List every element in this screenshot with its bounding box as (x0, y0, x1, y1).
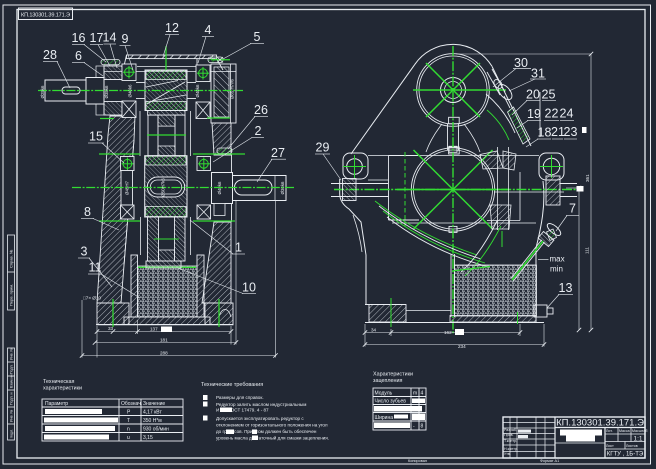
svg-text:Т.контр.: Т.контр. (504, 439, 517, 443)
svg-text:22: 22 (545, 107, 559, 121)
svg-text:Техническая: Техническая (43, 379, 75, 385)
svg-text:Подп. и: Подп. и (10, 392, 14, 405)
svg-text:4: 4 (205, 23, 212, 37)
svg-text:8: 8 (84, 205, 91, 219)
svg-text:зацепления: зацепления (373, 378, 403, 384)
svg-text:29: 29 (316, 141, 330, 155)
svg-text:24: 24 (560, 107, 574, 121)
svg-text:4: 4 (421, 391, 424, 397)
svg-text:Число зубьев: Число зубьев (375, 399, 407, 405)
svg-text:10: 10 (242, 281, 256, 295)
svg-text:Ø35k6: Ø35k6 (104, 85, 109, 98)
svg-text:Пров.: Пров. (504, 433, 514, 437)
svg-text:17: 17 (90, 31, 104, 45)
svg-text:26: 26 (254, 103, 268, 117)
svg-text:Технические требования: Технические требования (201, 382, 263, 388)
svg-text:3,15: 3,15 (143, 435, 153, 441)
svg-text:Ø40k6: Ø40k6 (128, 84, 133, 97)
svg-text:14: 14 (103, 31, 117, 45)
svg-text:1: 1 (235, 241, 242, 255)
svg-text:Формат А1: Формат А1 (540, 459, 559, 463)
svg-text:12: 12 (165, 21, 179, 35)
svg-text:Модуль: Модуль (375, 391, 393, 397)
svg-text:n: n (127, 427, 130, 433)
svg-text:15: 15 (89, 130, 103, 144)
svg-text:6: 6 (75, 49, 82, 63)
svg-text:5: 5 (254, 30, 261, 44)
svg-text:Значение: Значение (143, 401, 165, 407)
svg-text:Перв. прим.: Перв. прим. (9, 284, 14, 306)
svg-text:Ø40k6: Ø40k6 (195, 84, 200, 97)
svg-text:34: 34 (371, 328, 377, 333)
svg-text:28: 28 (43, 48, 57, 62)
svg-text:4,17 кВт: 4,17 кВт (143, 410, 162, 416)
svg-text:КП.130301.39.171.Э: КП.130301.39.171.Э (21, 13, 70, 19)
svg-text:16: 16 (72, 31, 86, 45)
svg-text:Лист: Лист (606, 444, 614, 448)
svg-text:уровень масла достаточный для: уровень масла достаточный для смазки зац… (216, 435, 329, 441)
svg-text:Лит.: Лит. (606, 429, 613, 433)
svg-text:2: 2 (255, 124, 262, 138)
svg-text:подл.: подл. (10, 429, 14, 438)
svg-text:Разраб.: Разраб. (504, 428, 517, 432)
svg-text:m: m (413, 391, 417, 397)
svg-text:8: 8 (421, 424, 424, 430)
svg-text:КГТУ , 1Б-ТЭ: КГТУ , 1Б-ТЭ (607, 452, 644, 458)
svg-text:1:1: 1:1 (633, 436, 642, 443)
svg-text:20: 20 (526, 88, 540, 102)
svg-text:33: 33 (108, 326, 114, 331)
svg-text:13: 13 (559, 281, 573, 295)
svg-text:Взам.ин: Взам.ин (10, 374, 14, 388)
svg-text:Ширина: Ширина (375, 415, 394, 421)
svg-text:Утв.: Утв. (504, 452, 511, 456)
svg-text:9: 9 (122, 32, 129, 46)
svg-text:361: 361 (585, 174, 590, 182)
svg-text:31: 31 (531, 67, 545, 81)
svg-text:Ø25k6: Ø25k6 (40, 85, 45, 98)
svg-text:Параметр: Параметр (45, 401, 68, 407)
svg-text:min: min (550, 265, 563, 274)
svg-text:930 об/мин: 930 об/мин (143, 427, 169, 433)
svg-text:характеристики: характеристики (43, 386, 82, 392)
svg-text:Характеристики: Характеристики (373, 372, 413, 378)
svg-text:27: 27 (271, 146, 285, 160)
svg-text:288: 288 (160, 351, 168, 356)
svg-text:u: u (127, 435, 130, 441)
svg-text:Ø50H7k6: Ø50H7k6 (161, 178, 166, 197)
svg-text:3: 3 (81, 245, 88, 259)
svg-text:350 Н*м: 350 Н*м (143, 418, 162, 424)
svg-text:18: 18 (538, 126, 552, 140)
svg-text:11: 11 (89, 261, 102, 275)
svg-text:Справ. №: Справ. № (9, 250, 14, 268)
svg-text:Ø85 H7/f6: Ø85 H7/f6 (230, 78, 235, 99)
svg-text:23: 23 (564, 125, 578, 139)
svg-text:137: 137 (150, 327, 158, 332)
svg-text:Допускается эксплуатировать ре: Допускается эксплуатировать редуктор с (216, 416, 304, 421)
svg-text:Масса: Масса (619, 429, 630, 433)
svg-text:162: 162 (444, 330, 452, 335)
svg-text:Копировал: Копировал (408, 459, 427, 463)
svg-text:Т: Т (127, 418, 130, 424)
svg-text:КП.130301.39.171.Э: КП.130301.39.171.Э (556, 418, 644, 429)
svg-text:Н.контр.: Н.контр. (504, 447, 518, 451)
svg-text:Подп.: Подп. (10, 364, 14, 374)
svg-text:□7× Ø10: □7× Ø10 (83, 296, 101, 301)
svg-text:234: 234 (458, 344, 466, 349)
svg-text:Инв. №: Инв. № (10, 348, 14, 360)
svg-text:Масштаб: Масштаб (632, 429, 647, 433)
svg-text:181: 181 (160, 338, 168, 343)
svg-text:7: 7 (569, 202, 576, 216)
svg-text:111: 111 (585, 247, 590, 254)
svg-text:max: max (550, 255, 565, 264)
svg-text:Обознач.: Обознач. (121, 401, 142, 407)
svg-text:Листов: Листов (626, 444, 638, 448)
svg-text:отклонением от горизонтального: отклонением от горизонтального положения… (216, 423, 328, 428)
svg-text:Размеры для справок.: Размеры для справок. (216, 395, 264, 400)
svg-text:30: 30 (514, 56, 528, 70)
svg-text:19: 19 (527, 107, 541, 121)
svg-text:Редуктор залить маслом индустр: Редуктор залить маслом индустриальным (216, 402, 306, 407)
svg-text:25: 25 (542, 88, 556, 102)
svg-text:Инв. №: Инв. № (10, 410, 14, 422)
